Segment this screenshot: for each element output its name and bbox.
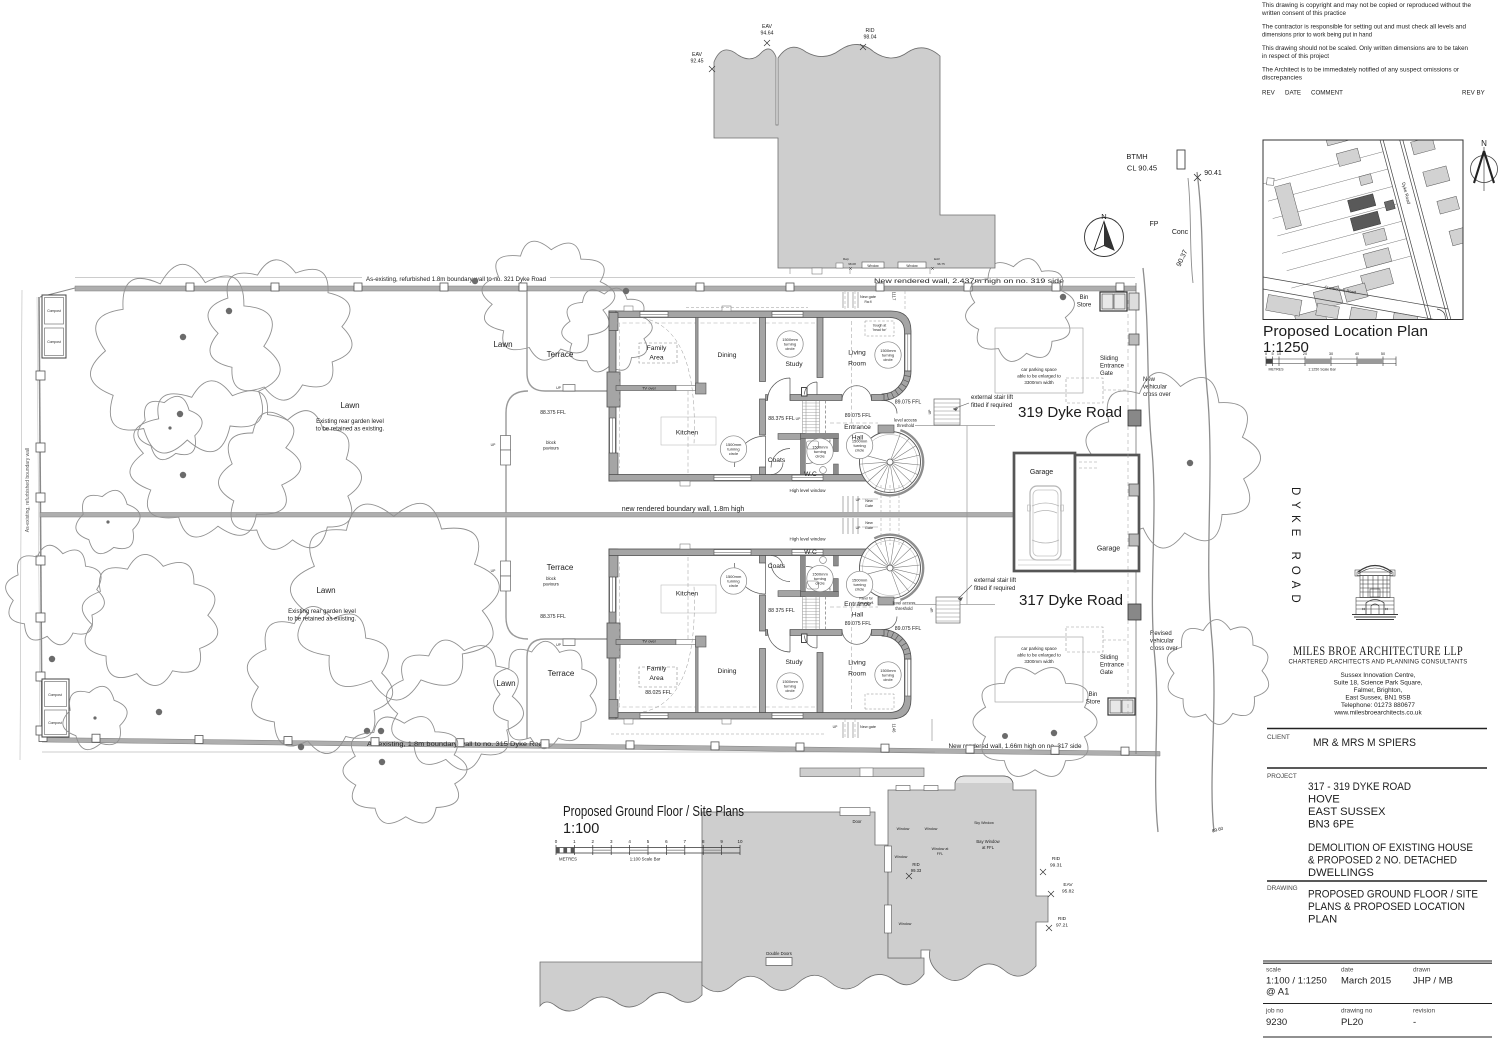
svg-text:317 - 319 DYKE ROAD: 317 - 319 DYKE ROAD [1308,781,1411,793]
svg-text:Store: Store [1086,700,1101,706]
svg-text:Proposed Location Plan: Proposed Location Plan [1263,323,1428,340]
svg-text:PLAN: PLAN [1308,914,1337,926]
svg-text:new rendered boundary wall, 1.: new rendered boundary wall, 1.8m high [622,506,745,513]
svg-text:PROPOSED GROUND FLOOR / SITE: PROPOSED GROUND FLOOR / SITE [1308,889,1478,901]
svg-text:Bin: Bin [1080,295,1089,301]
svg-text:New gate: New gate [860,725,876,729]
svg-text:www.milesbroearchitects.co.uk: www.milesbroearchitects.co.uk [1333,710,1422,717]
svg-text:Kitchen: Kitchen [676,591,699,598]
svg-text:High level window: High level window [789,488,826,493]
svg-text:Area: Area [649,355,663,362]
svg-text:Gate: Gate [865,526,873,530]
svg-text:Lawn: Lawn [316,586,335,595]
svg-text:UP: UP [833,725,838,729]
svg-text:1:1250 Scale Bar: 1:1250 Scale Bar [1308,368,1336,372]
svg-text:March 2015: March 2015 [1341,976,1391,987]
svg-text:This drawing should not be sca: This drawing should not be scaled. Only … [1262,45,1469,52]
svg-text:Terrace: Terrace [547,563,574,572]
svg-text:METRES: METRES [1269,368,1285,372]
svg-text:circle: circle [855,448,865,453]
svg-text:Bay Window: Bay Window [976,839,1000,844]
svg-text:HOVE: HOVE [1308,794,1340,806]
svg-text:88.375 FFL: 88.375 FFL [540,614,566,620]
svg-text:UP: UP [796,417,801,421]
svg-text:98.04: 98.04 [864,35,877,41]
svg-text:REV BY: REV BY [1462,90,1485,97]
svg-text:317 Dyke Road: 317 Dyke Road [1019,592,1123,609]
svg-text:& PROPOSED 2 NO. DETACHED: & PROPOSED 2 NO. DETACHED [1308,855,1457,867]
svg-text:50: 50 [1381,352,1385,356]
svg-text:Study: Study [785,659,803,666]
svg-text:circle: circle [883,357,893,362]
svg-text:New: New [865,499,873,503]
svg-text:Gate: Gate [865,504,873,508]
svg-text:revision: revision [1413,1008,1435,1015]
svg-text:DYKE ROAD: DYKE ROAD [1289,487,1301,609]
svg-text:Bin: Bin [1089,692,1098,698]
svg-text:able to be enlarged to: able to be enlarged to [1017,374,1061,379]
svg-text:Dining: Dining [718,668,737,675]
svg-text:89.075 FFL: 89.075 FFL [895,626,922,632]
svg-text:The Architect is to be immedia: The Architect is to be immediately notif… [1262,67,1459,74]
svg-text:circle: circle [729,583,739,588]
svg-text:Study: Study [785,361,803,368]
svg-text:PROJECT: PROJECT [1267,773,1297,780]
svg-text:at FFL: at FFL [982,845,995,850]
svg-text:Window: Window [925,827,938,831]
svg-text:New gate: New gate [860,295,876,299]
svg-text:Hall: Hall [852,612,864,619]
svg-text:Lawn: Lawn [340,401,359,410]
svg-text:Compost: Compost [47,340,61,344]
svg-text:block: block [546,576,557,581]
svg-text:3300mm width: 3300mm width [1024,380,1054,385]
svg-text:to be retained as existing.: to be retained as existing. [316,427,385,433]
svg-text:0: 0 [1265,352,1267,356]
svg-text:Sliding: Sliding [1100,356,1118,362]
svg-text:threshold: threshold [897,423,915,428]
svg-text:1117: 1117 [892,292,897,301]
svg-text:Kitchen: Kitchen [676,430,699,437]
svg-text:30: 30 [1329,352,1333,356]
svg-text:MR & MRS M SPIERS: MR & MRS M SPIERS [1313,737,1416,749]
svg-text:89.075 FFL: 89.075 FFL [895,400,922,406]
svg-text:Rwp: Rwp [843,257,849,261]
svg-text:East Sussex, BN1 9SB: East Sussex, BN1 9SB [1345,695,1410,702]
svg-text:DWELLINGS: DWELLINGS [1308,867,1374,879]
svg-text:5: 5 [1271,352,1273,356]
svg-text:Existing rear garden level: Existing rear garden level [288,609,356,615]
svg-text:UP: UP [491,443,496,447]
svg-text:Gate: Gate [1100,371,1114,377]
svg-text:through rfl.: through rfl. [858,601,874,605]
svg-text:JHP / MB: JHP / MB [1413,976,1453,987]
svg-text:circle: circle [729,451,739,456]
svg-text:Room: Room [848,671,866,678]
svg-text:Window: Window [895,855,908,859]
svg-text:DRAWING: DRAWING [1267,885,1298,892]
svg-text:High level window: High level window [789,537,826,542]
svg-text:98.08: 98.08 [848,262,856,266]
svg-text:This drawing is copyright and: This drawing is copyright and may not be… [1262,2,1472,9]
svg-text:cross over: cross over [1143,392,1171,398]
svg-text:paviours: paviours [543,446,559,451]
svg-text:90.41: 90.41 [1204,170,1222,177]
svg-text:circle: circle [883,677,893,682]
svg-text:block: block [546,440,557,445]
svg-text:UP: UP [556,386,561,390]
svg-text:As-existing, refurbished 1.8m: As-existing, refurbished 1.8m boundary w… [366,277,546,283]
svg-text:in respect of this project: in respect of this project [1262,53,1329,60]
svg-text:'head for': 'head for' [873,328,887,332]
svg-text:89.075 FFL: 89.075 FFL [845,413,872,419]
svg-text:circle: circle [855,587,865,592]
svg-text:car parking space: car parking space [1021,367,1057,372]
svg-text:W.C: W.C [804,549,817,556]
svg-text:Garage: Garage [1097,546,1120,553]
svg-text:W.C: W.C [804,471,817,478]
svg-text:92.45: 92.45 [691,59,704,65]
svg-text:circle: circle [785,688,795,693]
svg-text:N: N [1481,139,1487,148]
svg-text:BN3 6PE: BN3 6PE [1308,819,1354,831]
svg-text:external stair lift: external stair lift [974,578,1016,584]
svg-text:3300mm width: 3300mm width [1024,659,1054,664]
svg-text:DATE: DATE [1285,90,1301,97]
svg-text:Living: Living [848,660,866,667]
svg-text:Store: Store [1077,303,1092,309]
svg-text:The contractor is responsible: The contractor is responsible for settin… [1262,24,1467,31]
svg-text:Existing rear garden level: Existing rear garden level [316,419,384,425]
svg-text:UP: UP [930,607,934,612]
svg-text:EAV: EAV [934,257,940,261]
svg-text:COMMENT: COMMENT [1311,90,1343,97]
svg-text:UP: UP [556,643,561,647]
svg-text:89.075 FFL: 89.075 FFL [845,621,872,627]
svg-text:88.375 FFL: 88.375 FFL [768,416,795,422]
svg-text:UP: UP [856,498,861,502]
svg-text:UP: UP [856,526,861,530]
svg-text:88.025 FFL: 88.025 FFL [645,690,672,696]
svg-text:car parking space: car parking space [1021,646,1057,651]
svg-text:circle: circle [785,346,795,351]
svg-text:10: 10 [1277,352,1281,356]
svg-text:Gate: Gate [1100,670,1114,676]
svg-text:fitted if required: fitted if required [974,586,1015,592]
svg-text:drawn: drawn [1413,967,1431,974]
svg-text:Window: Window [906,264,918,268]
svg-text:EAV: EAV [762,24,773,30]
svg-text:threshold: threshold [895,606,913,611]
svg-text:Proposed Ground Floor / Site P: Proposed Ground Floor / Site Plans [563,804,744,820]
svg-text:9230: 9230 [1266,1017,1287,1028]
svg-text:Entrance: Entrance [1100,364,1125,370]
svg-text:MILES BROE ARCHITECTURE LLP: MILES BROE ARCHITECTURE LLP [1293,644,1463,658]
svg-text:Sussex Innovation Centre,: Sussex Innovation Centre, [1341,672,1416,679]
svg-text:Window: Window [899,922,912,926]
svg-text:PL20: PL20 [1341,1017,1363,1028]
svg-text:date: date [1341,967,1354,974]
svg-text:New: New [1143,377,1156,383]
svg-text:UP: UP [928,409,932,414]
svg-text:Sky Window: Sky Window [974,821,994,825]
svg-text:RID: RID [1052,856,1061,862]
svg-text:Garage: Garage [1030,469,1053,476]
svg-text:paviours: paviours [543,582,559,587]
svg-text:external stair lift: external stair lift [971,395,1013,401]
svg-text:88 375 FFL: 88 375 FFL [768,608,795,614]
svg-text:scale: scale [1266,967,1281,974]
svg-text:RID: RID [912,862,919,867]
svg-text:EAV: EAV [692,52,703,58]
svg-text:circle: circle [815,454,825,459]
svg-text:Window at: Window at [932,847,949,851]
svg-text:UP: UP [491,569,496,573]
svg-text:Terrace: Terrace [548,669,575,678]
svg-text:Family: Family [647,345,667,352]
svg-text:@ A1: @ A1 [1266,987,1289,998]
svg-text:Room: Room [848,361,866,368]
svg-text:circle: circle [815,581,825,586]
svg-text:Terrace: Terrace [547,350,574,359]
svg-text:RID: RID [1058,916,1067,922]
svg-text:Living: Living [848,350,866,357]
svg-text:Compost: Compost [48,721,62,725]
svg-text:Coats: Coats [768,563,786,570]
svg-text:FFL: FFL [937,852,943,856]
svg-text:Compost: Compost [48,693,62,697]
svg-text:to be retained as existing.: to be retained as existing. [288,617,357,623]
svg-text:Sliding: Sliding [1100,655,1118,661]
svg-text:Rw.fl: Rw.fl [865,300,872,304]
svg-text:Door: Door [852,819,862,824]
svg-text:drawing no: drawing no [1341,1008,1373,1015]
svg-text:level access: level access [894,418,917,423]
svg-text:Falmer, Brighton,: Falmer, Brighton, [1354,687,1403,694]
svg-text:Lawn: Lawn [496,679,515,688]
svg-text:Window: Window [897,827,910,831]
svg-text:able to be enlarged to: able to be enlarged to [1017,653,1061,658]
svg-text:Compost: Compost [47,309,61,313]
svg-text:Telephone: 01273 880677: Telephone: 01273 880677 [1341,702,1415,709]
svg-text:94.64: 94.64 [761,31,774,37]
svg-text:trough at: trough at [873,324,886,328]
svg-text:40: 40 [1355,352,1359,356]
svg-text:1:100 / 1:1250: 1:100 / 1:1250 [1266,976,1327,987]
svg-text:fitted if required: fitted if required [971,403,1012,409]
svg-text:New: New [865,521,873,525]
svg-text:TV over: TV over [642,639,657,644]
svg-text:96.75: 96.75 [937,262,945,266]
svg-text:Panel for: Panel for [859,597,873,601]
svg-text:Lawn: Lawn [493,340,512,349]
svg-text:Family: Family [647,666,667,673]
svg-text:Conc: Conc [1172,229,1189,236]
svg-text:319 Dyke Road: 319 Dyke Road [1018,404,1122,421]
svg-text:Dining: Dining [718,352,737,359]
svg-text:N: N [1101,212,1106,221]
svg-text:-: - [1413,1017,1416,1028]
svg-text:88.375 FFL: 88.375 FFL [540,410,566,416]
svg-text:EAV: EAV [1063,882,1073,888]
svg-text:1146: 1146 [892,723,897,733]
svg-text:10: 10 [737,839,743,844]
svg-text:vehicular: vehicular [1143,385,1167,391]
svg-text:level access: level access [893,601,916,606]
svg-text:Entrance: Entrance [1100,663,1125,669]
svg-text:TV over: TV over [642,385,657,390]
svg-text:20: 20 [1303,352,1307,356]
svg-text:RID: RID [866,28,875,34]
svg-text:99.31: 99.31 [1050,863,1062,869]
svg-text:As-existing, refurbished bound: As-existing, refurbished boundary wall [25,448,31,533]
svg-text:EAST SUSSEX: EAST SUSSEX [1308,806,1386,818]
svg-text:written consent of this practi: written consent of this practice [1261,10,1347,17]
svg-text:REV: REV [1262,90,1276,97]
svg-text:CHARTERED ARCHITECTS AND PLANN: CHARTERED ARCHITECTS AND PLANNING CONSUL… [1289,659,1468,666]
svg-text:1:100: 1:100 [563,821,599,837]
svg-text:FP: FP [1150,221,1159,228]
svg-text:METRES: METRES [559,857,577,862]
svg-text:job no: job no [1265,1008,1284,1015]
svg-text:dimensions prior to work being: dimensions prior to work being put in ha… [1262,32,1373,39]
svg-text:DEMOLITION OF EXISTING HOUSE: DEMOLITION OF EXISTING HOUSE [1308,842,1473,854]
svg-text:CLIENT: CLIENT [1267,734,1290,741]
svg-text:Area: Area [649,675,663,682]
svg-text:97.21: 97.21 [1056,923,1068,929]
svg-text:Window: Window [867,264,879,268]
svg-text:Entrance: Entrance [844,424,871,431]
svg-text:95.82: 95.82 [1062,889,1074,895]
svg-text:1:100 Scale Bar: 1:100 Scale Bar [630,857,661,862]
svg-text:CL 90.45: CL 90.45 [1127,164,1157,173]
svg-text:discrepancies: discrepancies [1262,75,1302,82]
svg-text:Coats: Coats [768,457,786,464]
svg-text:BTMH: BTMH [1126,152,1147,161]
svg-text:PLANS & PROPOSED LOCATION: PLANS & PROPOSED LOCATION [1308,901,1465,913]
svg-text:Double Doors: Double Doors [766,951,792,956]
svg-text:99.33: 99.33 [911,868,922,873]
svg-text:Suite 18, Science Park Square,: Suite 18, Science Park Square, [1334,680,1423,687]
